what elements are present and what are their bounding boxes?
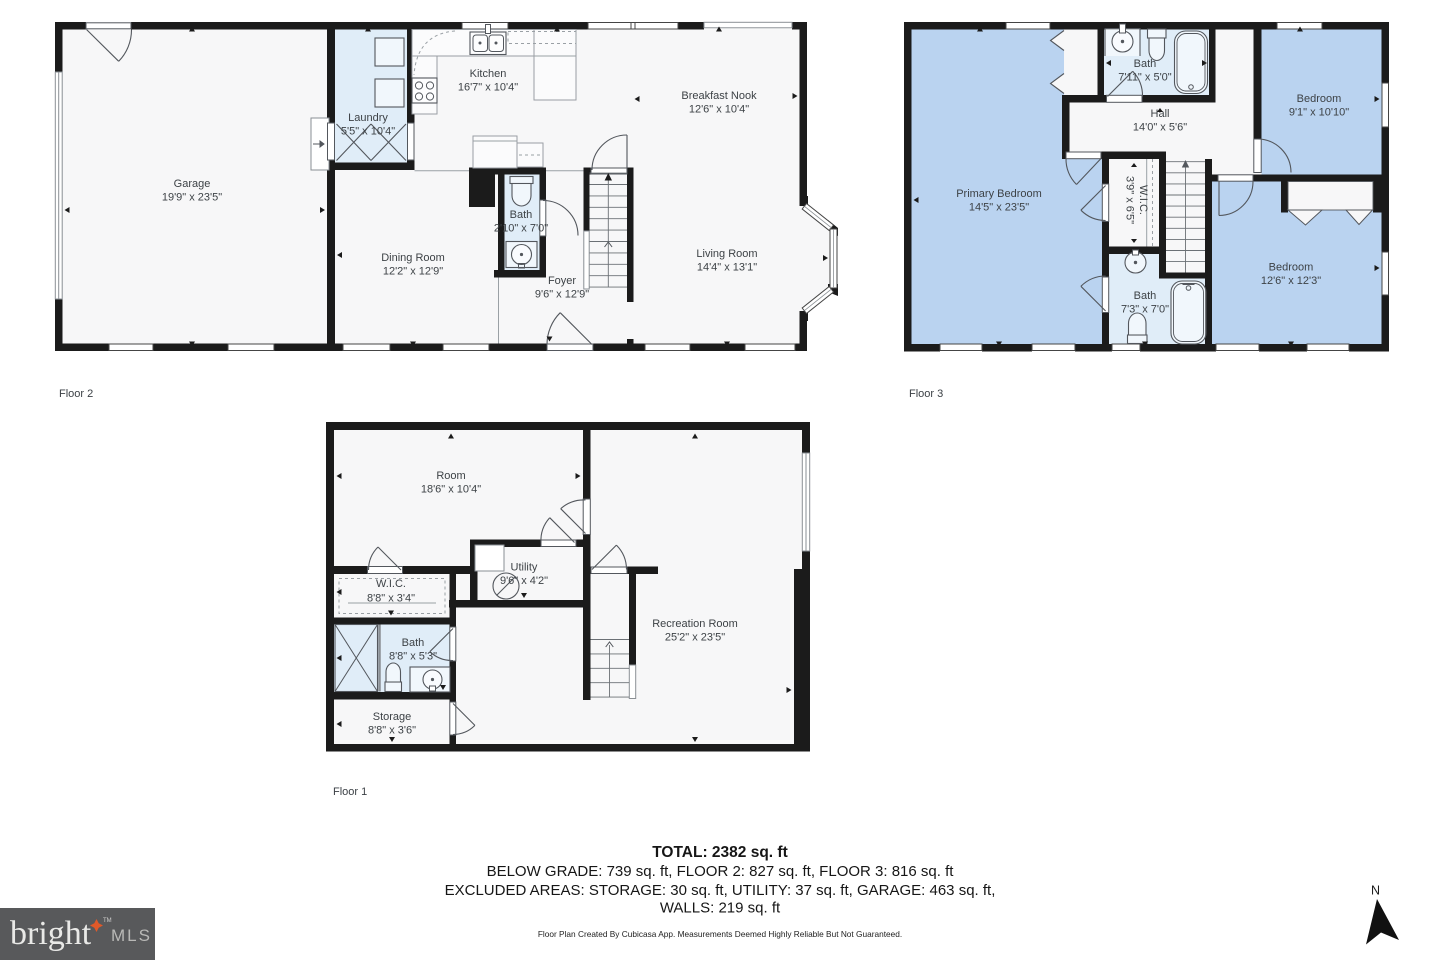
svg-text:Breakfast Nook: Breakfast Nook [681, 90, 757, 102]
svg-text:Laundry: Laundry [348, 112, 388, 124]
svg-text:Living Room: Living Room [696, 248, 757, 260]
svg-text:W.I.C.: W.I.C. [376, 578, 406, 590]
svg-text:Primary Bedroom: Primary Bedroom [956, 188, 1042, 200]
svg-text:5'5" x 10'4": 5'5" x 10'4" [341, 126, 395, 138]
svg-text:Bedroom: Bedroom [1297, 93, 1342, 105]
svg-text:Floor 1: Floor 1 [333, 786, 367, 798]
svg-text:Bedroom: Bedroom [1269, 262, 1314, 274]
svg-text:EXCLUDED AREAS: STORAGE: 30 sq: EXCLUDED AREAS: STORAGE: 30 sq. ft, UTIL… [445, 882, 996, 899]
svg-text:25'2" x 23'5": 25'2" x 23'5" [665, 632, 725, 644]
svg-text:8'8" x 3'6": 8'8" x 3'6" [368, 725, 416, 737]
svg-text:19'9" x 23'5": 19'9" x 23'5" [162, 192, 222, 204]
svg-text:TM: TM [103, 918, 112, 924]
svg-text:9'1" x 10'10": 9'1" x 10'10" [1289, 107, 1349, 119]
svg-text:bright: bright [10, 915, 92, 952]
svg-text:Garage: Garage [174, 178, 211, 190]
svg-text:8'8" x 3'4": 8'8" x 3'4" [367, 593, 415, 605]
svg-text:N: N [1371, 884, 1380, 898]
svg-text:Bath: Bath [1134, 290, 1157, 302]
svg-text:TOTAL: 2382 sq. ft: TOTAL: 2382 sq. ft [652, 844, 788, 861]
svg-text:9'6" x 12'9": 9'6" x 12'9" [535, 289, 589, 301]
svg-text:Storage: Storage [373, 711, 412, 723]
svg-text:8'8" x 5'3": 8'8" x 5'3" [389, 651, 437, 663]
svg-text:7'11" x 5'0": 7'11" x 5'0" [1118, 72, 1171, 84]
svg-text:2'10" x 7'0": 2'10" x 7'0" [494, 223, 548, 235]
svg-text:Floor 3: Floor 3 [909, 388, 943, 400]
svg-text:12'6" x 10'4": 12'6" x 10'4" [689, 104, 749, 116]
svg-text:BELOW GRADE: 739 sq. ft, FLOOR: BELOW GRADE: 739 sq. ft, FLOOR 2: 827 sq… [487, 863, 955, 880]
svg-text:12'6" x 12'3": 12'6" x 12'3" [1261, 275, 1321, 287]
svg-text:7'3" x 7'0": 7'3" x 7'0" [1121, 304, 1169, 316]
svg-text:18'6" x 10'4": 18'6" x 10'4" [421, 484, 481, 496]
svg-text:14'0" x 5'6": 14'0" x 5'6" [1133, 122, 1187, 134]
svg-text:16'7" x 10'4": 16'7" x 10'4" [458, 82, 518, 94]
svg-text:3'9" x 6'5": 3'9" x 6'5" [1124, 176, 1136, 224]
svg-text:Utility: Utility [511, 562, 538, 574]
svg-text:Floor 2: Floor 2 [59, 388, 93, 400]
svg-text:Kitchen: Kitchen [470, 68, 507, 80]
svg-text:WALLS: 219 sq. ft: WALLS: 219 sq. ft [660, 900, 781, 917]
svg-text:Dining Room: Dining Room [381, 252, 445, 264]
svg-text:Bath: Bath [510, 209, 533, 221]
svg-text:Foyer: Foyer [548, 275, 576, 287]
svg-text:Room: Room [436, 470, 465, 482]
svg-text:Bath: Bath [1134, 58, 1157, 70]
svg-text:14'4" x 13'1": 14'4" x 13'1" [697, 262, 757, 274]
svg-text:Bath: Bath [402, 637, 425, 649]
svg-text:Floor Plan Created By Cubicasa: Floor Plan Created By Cubicasa App. Meas… [538, 929, 902, 939]
svg-text:Recreation Room: Recreation Room [652, 618, 738, 630]
svg-text:12'2" x 12'9": 12'2" x 12'9" [383, 266, 443, 278]
svg-text:W.I.C.: W.I.C. [1137, 185, 1149, 215]
svg-text:14'5" x 23'5": 14'5" x 23'5" [969, 202, 1029, 214]
svg-text:MLS: MLS [111, 926, 152, 945]
svg-text:9'6" x 4'2": 9'6" x 4'2" [500, 575, 548, 587]
